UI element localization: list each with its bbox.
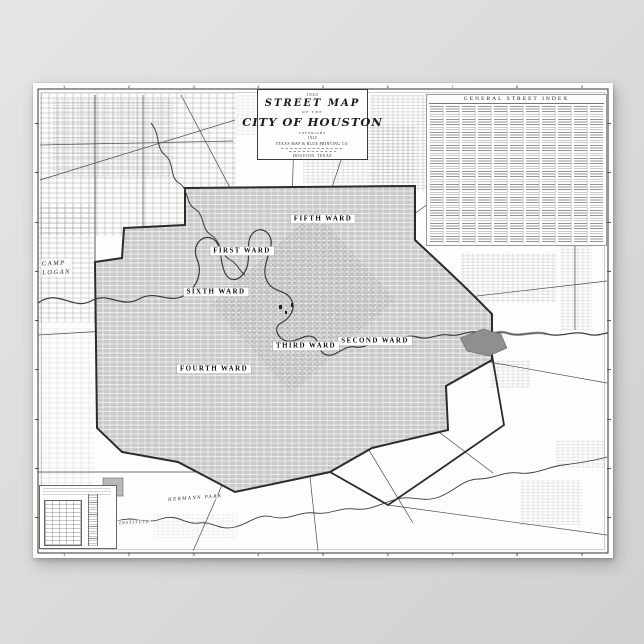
border-tick-mark	[35, 419, 39, 420]
index-column-texture	[590, 106, 604, 244]
map-title-block: 1920 STREET MAP OF THE CITY OF HOUSTON C…	[257, 89, 368, 160]
ward-label-third: THIRD WARD	[273, 342, 339, 351]
border-tick-mark	[35, 172, 39, 173]
border-ticks-left	[35, 123, 40, 518]
index-column-texture	[478, 106, 493, 244]
ward-label-fourth: FOURTH WARD	[177, 365, 251, 374]
border-tick-label: 8	[516, 552, 518, 558]
index-column-texture	[494, 106, 509, 244]
border-tick-mark	[35, 123, 39, 124]
legend-inset-strip	[88, 494, 98, 546]
index-column-texture	[510, 106, 525, 244]
border-tick-mark	[35, 468, 39, 469]
border-ticks-right	[607, 123, 612, 518]
title-publisher: TEXAS MAP & BLUE PRINTING CO.	[276, 142, 349, 146]
border-tick-label: 4	[257, 552, 259, 558]
border-tick-mark	[35, 320, 39, 321]
index-column-texture	[574, 106, 589, 244]
border-tick-mark	[607, 222, 611, 223]
border-tick-mark	[607, 468, 611, 469]
map-title: STREET MAP	[265, 98, 361, 109]
ward-label-fifth: FIFTH WARD	[291, 215, 355, 224]
camp-logan-line2: LOGAN	[42, 267, 71, 277]
border-tick-label: 9	[581, 84, 583, 90]
camp-logan-label: CAMP LOGAN	[41, 258, 72, 277]
border-tick-label: 3	[192, 84, 194, 90]
ward-label-sixth: SIXTH WARD	[184, 288, 249, 297]
border-tick-label: 9	[581, 552, 583, 558]
border-tick-mark	[607, 123, 611, 124]
general-street-index: GENERAL STREET INDEX	[426, 94, 607, 246]
index-column-texture	[446, 106, 461, 244]
border-tick-label: 8	[516, 84, 518, 90]
border-tick-mark	[607, 320, 611, 321]
title-smallprint-line	[289, 151, 337, 153]
border-tick-mark	[35, 517, 39, 518]
border-ticks-top: 123456789	[63, 84, 583, 90]
street-index-title: GENERAL STREET INDEX	[429, 96, 604, 104]
map-poster: 123456789 123456789 1920 STREET MAP OF T…	[33, 83, 613, 558]
title-place: HOUSTON, TEXAS	[293, 154, 332, 158]
border-tick-label: 1	[63, 84, 65, 90]
index-column-texture	[462, 106, 477, 244]
index-column-texture	[558, 106, 573, 244]
border-tick-mark	[607, 517, 611, 518]
title-year-top: 1920	[307, 92, 319, 97]
title-smallprint-line	[281, 148, 344, 150]
border-tick-mark	[607, 172, 611, 173]
street-index-columns	[429, 106, 604, 244]
border-tick-label: 5	[322, 84, 324, 90]
border-ticks-bottom: 123456789	[63, 552, 583, 558]
border-tick-mark	[607, 271, 611, 272]
border-tick-mark	[607, 419, 611, 420]
border-tick-mark	[35, 222, 39, 223]
border-tick-label: 5	[322, 552, 324, 558]
index-column-texture	[430, 106, 445, 244]
index-column-texture	[542, 106, 557, 244]
ward-label-second: SECOND WARD	[338, 337, 412, 346]
title-of-the: OF THE	[302, 110, 323, 114]
title-city: CITY OF HOUSTON	[242, 115, 383, 129]
border-tick-label: 7	[451, 84, 453, 90]
border-tick-label: 2	[128, 84, 130, 90]
border-tick-mark	[35, 369, 39, 370]
border-tick-mark	[607, 369, 611, 370]
legend-inset-title-texture	[43, 488, 111, 496]
title-copyright: COPYRIGHT	[299, 131, 326, 135]
border-tick-label: 2	[128, 552, 130, 558]
product-background: 123456789 123456789 1920 STREET MAP OF T…	[0, 0, 644, 644]
border-tick-label: 1	[63, 552, 65, 558]
title-year: 1920	[308, 136, 317, 140]
border-tick-label: 3	[192, 552, 194, 558]
border-tick-label: 4	[257, 84, 259, 90]
index-column-texture	[526, 106, 541, 244]
border-tick-label: 6	[387, 84, 389, 90]
legend-inset-table	[44, 500, 82, 546]
ward-label-first: FIRST WARD	[210, 247, 274, 256]
border-tick-mark	[35, 271, 39, 272]
border-tick-label: 6	[387, 552, 389, 558]
border-tick-label: 7	[451, 552, 453, 558]
legend-inset	[39, 485, 117, 549]
